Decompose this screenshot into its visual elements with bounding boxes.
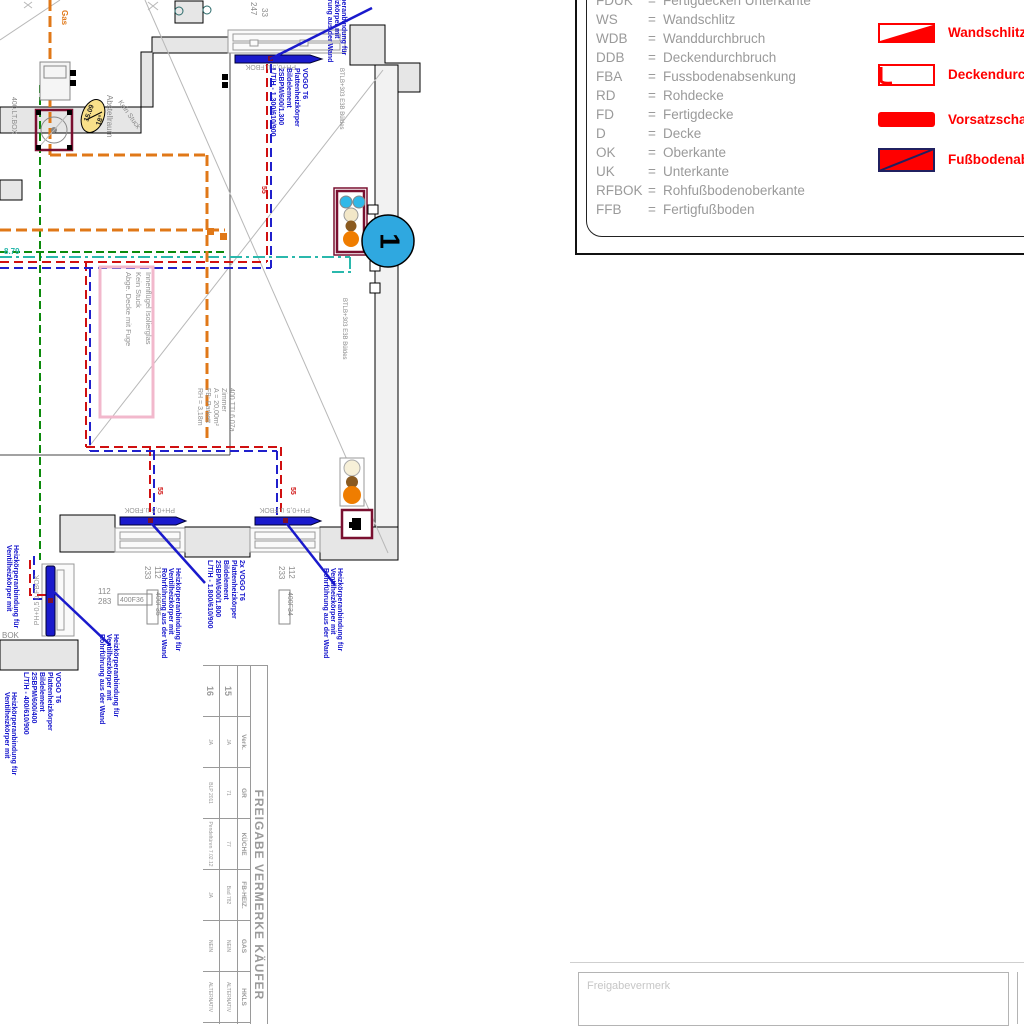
hk-note-line: Ventilheizkörper mit (329, 568, 336, 635)
gas-pipe (0, 0, 225, 440)
wall-note: BTLB+303 E3B Büldes (341, 298, 347, 360)
dim-label: 233 (277, 566, 286, 580)
wall-corner-block (60, 515, 115, 552)
legend-row: FFB=Fertigfußboden (596, 200, 755, 219)
deckendurchbruch-icon (878, 64, 935, 86)
valve-dot (48, 598, 53, 603)
pink-note-line: Innenflügel Isolierglas (144, 272, 153, 345)
gas-label: Gas (60, 10, 69, 26)
approval-table: FREIGABE VERMERKE KÄUFER Verk. GR KÜCHE … (203, 665, 268, 1024)
cold-water-pipe (0, 257, 352, 272)
approval-table-wrap: FREIGABE VERMERKE KÄUFER Verk. GR KÜCHE … (203, 665, 268, 1024)
ref-label: 400F36 (120, 597, 144, 604)
legend-row: WS=Wandschlitz (596, 10, 735, 29)
wandschlitz-label: Wandschlitz (948, 23, 1024, 43)
valve-dot (148, 518, 153, 523)
legend-row: OK=Oberkante (596, 143, 726, 162)
gas-fitting (207, 228, 214, 235)
room-label-line: A = 20,00m² (212, 388, 219, 427)
approval-table-header: Verk. GR KÜCHE FB-HEIZ. GAS HKLS (238, 666, 251, 1025)
legend-row: UK=Unterkante (596, 162, 729, 181)
legend-row: FDUK=Fertigdecken Unterkante (596, 0, 811, 10)
legend-row: RD=Rohdecke (596, 86, 724, 105)
vogo-spec-line: VOGO T6 (301, 68, 308, 99)
vorsatzschale-icon (878, 112, 935, 127)
radiator-top (235, 55, 322, 63)
legend-row: FBA=Fussbodenabsenkung (596, 67, 796, 86)
hk-note-line: Ventilheizkörper mit (5, 545, 12, 612)
dim-label: 112 (98, 587, 111, 596)
ph-label: PH+0,5 ü.FBOK (124, 506, 175, 513)
hk-note-line: Heizkörperanbindung für (12, 545, 19, 629)
room-label-line: 400.TTI.6.07a (228, 388, 235, 432)
wall-step (141, 37, 232, 107)
ref-label: 400F35 (154, 592, 161, 616)
legend-row: FD=Fertigdecke (596, 105, 734, 124)
riser-label: 55 (260, 186, 267, 194)
hk-note-line: Ventilheizkörper mit (105, 634, 112, 701)
wall-socket (370, 283, 380, 293)
burner (344, 208, 358, 222)
hk-note-line: Heizkörperanbindung für (174, 568, 181, 652)
hk-note-line: Heizkörperanbindung für (340, 0, 347, 56)
hk-note-line: Rohrführung aus der Wand (98, 634, 105, 724)
connection-box (342, 510, 372, 538)
legend-box: FDUK=Fertigdecken Unterkante WS=Wandschl… (586, 0, 1024, 237)
pink-note-line: Kein Stuck (134, 272, 143, 308)
vogo-spec-line: L/T/H - 1.800/610/900 (206, 560, 213, 629)
wall-bottom-left-band (0, 640, 78, 670)
hk-note-line: Ventilheizkörper mit (333, 0, 340, 39)
deckendurchbruch-label: Deckendurchbruch (948, 64, 1024, 86)
valve-dot (283, 518, 288, 523)
wall-note: BTLB+303 E3B Büldes (338, 68, 344, 130)
vogo-spec-line: 2x VOGO T6 (238, 560, 245, 601)
riser-label: 55 (156, 487, 163, 495)
hk-note-line: Rohrführung aus der Wand (326, 0, 333, 62)
pink-note-line: Abge. Decke mit Fuge (124, 272, 133, 346)
wandschlitz-icon (878, 23, 935, 43)
legend-row: RFBOK=Rohfußbodenoberkante (596, 181, 805, 200)
room-label-line: RH = 3,18m (196, 388, 203, 426)
small-circle (203, 6, 211, 14)
titleblock-right-cell (1017, 972, 1024, 1024)
ph-label: PH+0,5 ü.FBOK (259, 506, 310, 513)
ph-label: PH+0,5 ü.FBOK (34, 574, 41, 625)
titleblock-divider (570, 962, 1024, 963)
room-label-line: FB: Parkett (204, 388, 211, 423)
hk-note-line: Rohrführung aus der Wand (322, 568, 329, 658)
dim-label: 247 (249, 2, 258, 16)
wall-shaft (0, 180, 22, 200)
vogo-spec-line: Bildelement (38, 672, 45, 712)
vogo-spec-line: Plattenheizkörper (230, 560, 237, 619)
vogo-spec-line: Bildelement (222, 560, 229, 600)
hk-note-line: Ventilheizkörper mit (3, 692, 10, 759)
dim-label: 283 (98, 597, 112, 606)
legend-row: WDB=Wanddurchbruch (596, 29, 765, 48)
sink-basin (353, 196, 365, 208)
meter-fixture (340, 458, 364, 506)
sink-basin (340, 196, 352, 208)
hk-note-line: Rohrführung aus der Wand (160, 568, 167, 658)
legend-row: D=Decke (596, 124, 701, 143)
hk-note-line: Heizkörperanbindung für (112, 634, 119, 718)
vogo-spec-line: 2SBPM/600/1.800 (214, 560, 221, 617)
vogo-spec-line: Bildelement (285, 68, 292, 108)
hk-note-line: Heizkörperanbindung für (336, 568, 343, 652)
ref-label: 400F34 (286, 592, 293, 616)
socket-block (222, 82, 228, 88)
gas-boiler (40, 62, 76, 100)
bok-label: BOK (2, 631, 20, 640)
wall-right (375, 65, 398, 560)
table-row: 16 JABLP 2011 Pendeltüren 7.02.12JA NEIN… (203, 666, 220, 1025)
gas-fitting (220, 233, 227, 240)
hk-note-line: Heizkörperanbindung für (10, 692, 17, 776)
abstellraum-label: Abstellraum (105, 95, 114, 138)
dim-label: 233 (143, 566, 152, 580)
socket-block (222, 74, 228, 80)
fussbodenabsenkung-label: Fußbodenabsenkung (948, 148, 1024, 172)
approval-table-title: FREIGABE VERMERKE KÄUFER (251, 666, 268, 1025)
vogo-spec-line: Plattenheizkörper (46, 672, 53, 731)
vogo-spec-line: 2SBPM/600/1.300 (277, 68, 284, 125)
freigabevermerk-placeholder: Freigabevermerk (587, 980, 670, 992)
wall-bottom-mid (185, 527, 250, 557)
burner (343, 231, 359, 247)
section-marker: 1 (362, 215, 414, 267)
dim-label: 33 (260, 8, 269, 17)
vogo-spec-line: L/T/H - 1.300/610/900 (269, 68, 276, 137)
table-row: 15 JA71 77Bad 782 NEINALTERNATIV (220, 666, 238, 1025)
vogo-spec-line: VOGO T6 (54, 672, 61, 703)
wall-pillar (175, 1, 203, 23)
shaft-label: 400.LT.BOX (10, 97, 17, 135)
fussbodenabsenkung-icon (878, 148, 935, 172)
dim-label: 112 (287, 566, 296, 579)
vogo-spec-line: 2SBPM/600/400 (30, 672, 37, 723)
room-label-line: Zimmer (220, 388, 227, 412)
section-number: 1 (375, 233, 406, 249)
freigabevermerk-field[interactable]: Freigabevermerk (578, 972, 1009, 1026)
riser-label: 55 (289, 487, 296, 495)
wall-socket (368, 205, 378, 214)
vogo-spec-line: Plattenheizkörper (293, 68, 300, 127)
cross-mark (24, 2, 158, 10)
vogo-spec-line: L/T/H - 400/610/900 (22, 672, 29, 735)
hk-note-line: Ventilheizkörper mit (167, 568, 174, 635)
teal-dim-label: 8.79 (4, 247, 20, 256)
burner (346, 221, 357, 232)
legend-row: DDB=Deckendurchbruch (596, 48, 776, 67)
vorsatzschale-label: Vorsatzschale (948, 112, 1024, 127)
